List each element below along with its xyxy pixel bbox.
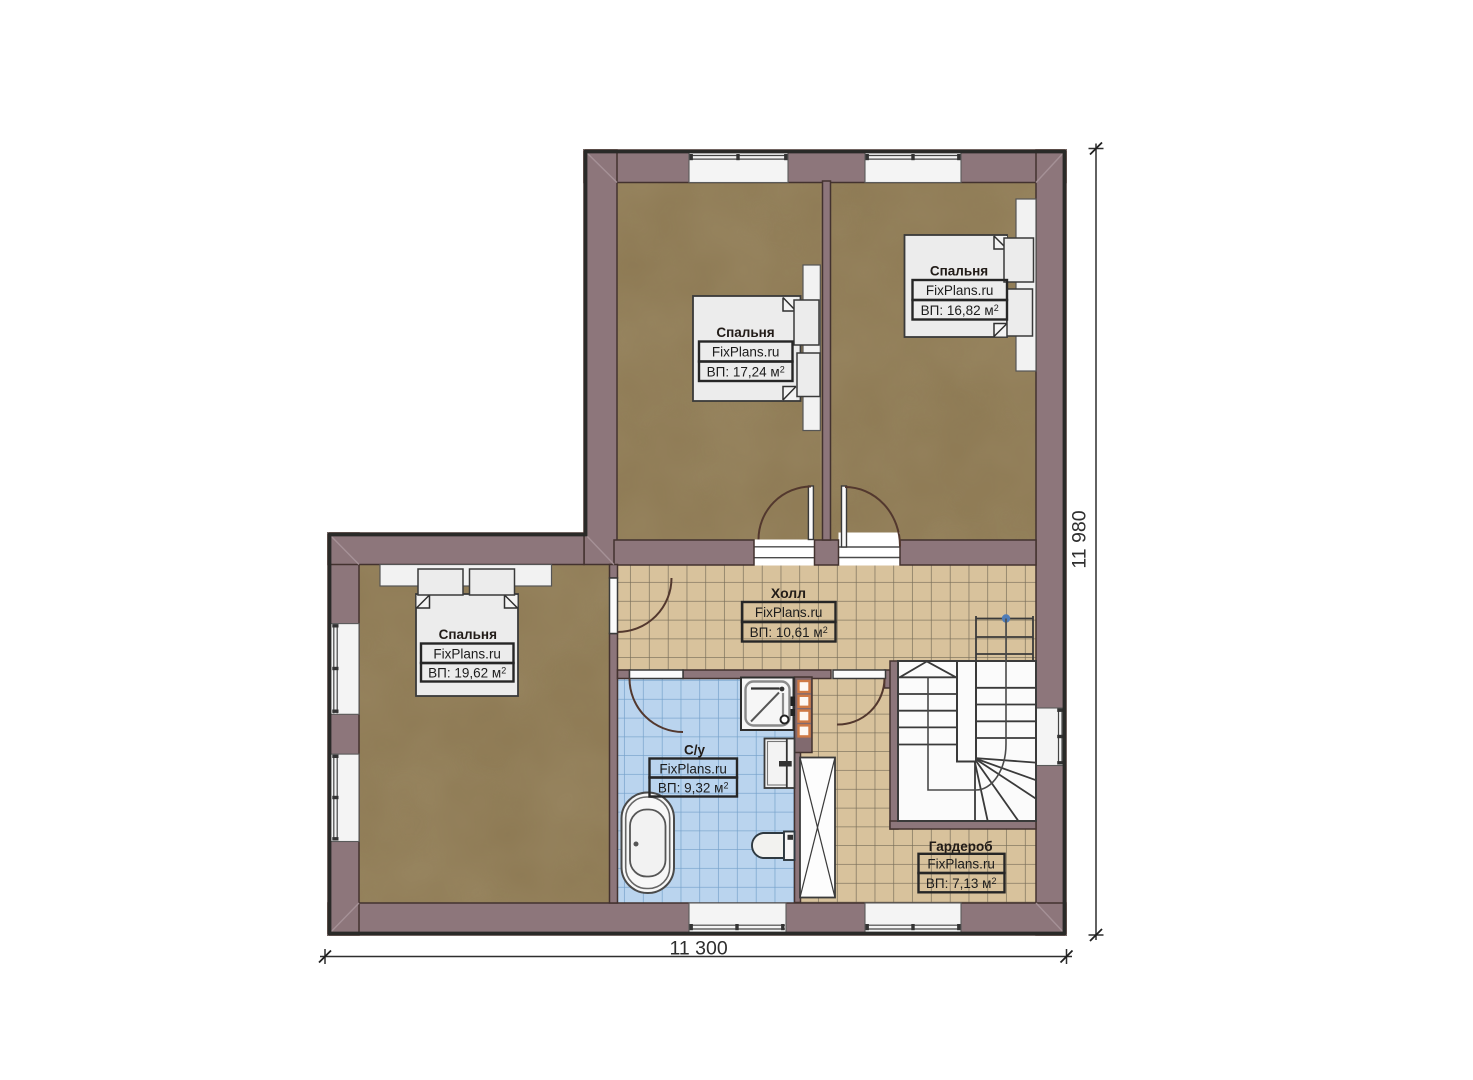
svg-text:FixPlans.ru: FixPlans.ru [659, 761, 727, 776]
svg-text:ВП: 9,32 м2: ВП: 9,32 м2 [658, 780, 729, 795]
svg-text:С/у: С/у [684, 743, 706, 758]
svg-text:ВП: 10,61 м2: ВП: 10,61 м2 [750, 625, 828, 640]
svg-text:Холл: Холл [771, 585, 806, 601]
svg-text:Спальня: Спальня [439, 627, 497, 642]
svg-text:ВП: 17,24 м2: ВП: 17,24 м2 [707, 364, 785, 379]
svg-text:ВП: 16,82 м2: ВП: 16,82 м2 [921, 303, 999, 318]
svg-text:FixPlans.ru: FixPlans.ru [927, 857, 995, 872]
svg-text:ВП: 19,62 м2: ВП: 19,62 м2 [428, 665, 506, 680]
svg-text:FixPlans.ru: FixPlans.ru [712, 345, 780, 360]
svg-text:FixPlans.ru: FixPlans.ru [755, 605, 823, 620]
svg-text:Спальня: Спальня [930, 264, 988, 279]
svg-text:FixPlans.ru: FixPlans.ru [433, 646, 501, 661]
svg-text:11 980: 11 980 [1069, 510, 1091, 568]
svg-text:ВП: 7,13 м2: ВП: 7,13 м2 [926, 876, 997, 891]
svg-text:11 300: 11 300 [669, 938, 727, 960]
svg-text:Спальня: Спальня [716, 325, 774, 340]
svg-text:Гардероб: Гардероб [929, 839, 993, 854]
svg-text:FixPlans.ru: FixPlans.ru [926, 283, 994, 298]
